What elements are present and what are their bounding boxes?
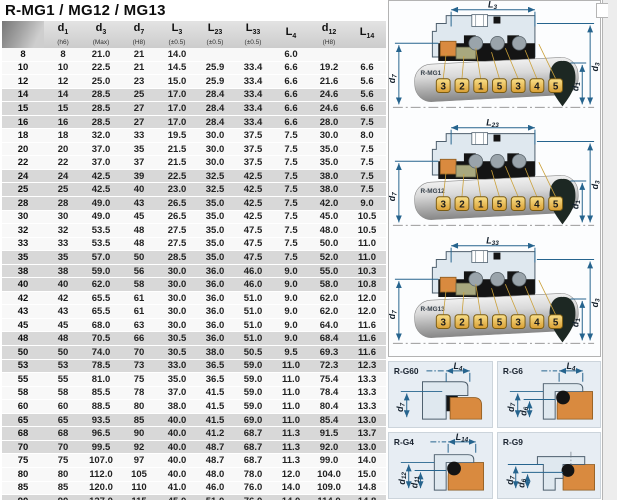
table-row: 8585120.011041.046.076.014.0109.014.8	[2, 481, 386, 495]
cell: 28.4	[196, 102, 234, 116]
cell: 6.6	[272, 61, 310, 75]
cell: 46.0	[234, 278, 272, 292]
cell: 35.0	[310, 156, 348, 170]
cell: 33.4	[234, 61, 272, 75]
cell: 39	[120, 169, 158, 183]
table-row: 535378.57333.036.559.011.072.312.3	[2, 359, 386, 373]
cell: 50.0	[310, 237, 348, 251]
cell: 75	[44, 454, 82, 468]
cell: 8.0	[348, 129, 386, 143]
cell	[310, 48, 348, 61]
table-row: 656593.58540.041.569.011.085.413.0	[2, 413, 386, 427]
cell: 21	[120, 61, 158, 75]
cell: 21.0	[82, 48, 120, 61]
cell: 11.3	[272, 440, 310, 454]
spring-icon	[469, 154, 483, 168]
set-screw-boss	[472, 251, 488, 263]
cell: 32.0	[82, 129, 120, 143]
cell: 68.4	[310, 332, 348, 346]
cell: 45	[120, 210, 158, 224]
cell: 14	[44, 88, 82, 102]
row-size-label: 30	[2, 210, 44, 224]
column-header: L14	[348, 21, 386, 48]
cell: 104.0	[310, 467, 348, 481]
cell: 32.5	[196, 183, 234, 197]
cell: 11.6	[348, 346, 386, 360]
spring-icon	[512, 36, 526, 50]
left-dimension-label: d12	[397, 472, 408, 485]
cell: 21	[120, 48, 158, 61]
cell: 12.0	[348, 291, 386, 305]
row-size-label: 55	[2, 373, 44, 387]
table-row: 333353.54827.535.047.57.550.011.0	[2, 237, 386, 251]
svg-text:1: 1	[478, 318, 484, 329]
cell: 33.4	[234, 102, 272, 116]
svg-text:1: 1	[478, 200, 484, 211]
cell: 30.0	[158, 318, 196, 332]
svg-text:4: 4	[534, 318, 540, 329]
cell: 40.0	[158, 440, 196, 454]
row-size-label: 90	[2, 495, 44, 500]
cell: 99.0	[310, 454, 348, 468]
table-row: 222237.03721.530.037.57.535.07.5	[2, 156, 386, 170]
cell: 69.3	[310, 346, 348, 360]
cell: 41.5	[196, 400, 234, 414]
cell: 6.6	[272, 102, 310, 116]
cell: 11.0	[272, 413, 310, 427]
top-dimension-label: L23	[486, 119, 499, 129]
cell: 9.0	[348, 197, 386, 211]
cell: 45.0	[158, 495, 196, 500]
cell: 17.0	[158, 88, 196, 102]
cell: 6.6	[272, 88, 310, 102]
svg-text:5: 5	[497, 318, 503, 329]
cell: 10.3	[348, 264, 386, 278]
row-size-label: 33	[2, 237, 44, 251]
cell: 7.5	[272, 251, 310, 265]
cell: 7.5	[348, 115, 386, 129]
cell: 7.5	[272, 210, 310, 224]
cell: 6.6	[348, 102, 386, 116]
cell: 36.0	[196, 278, 234, 292]
cell: 66	[120, 332, 158, 346]
cell: 5.6	[348, 88, 386, 102]
cell: 40	[120, 183, 158, 197]
cell: 68.0	[82, 318, 120, 332]
cell: 10.5	[348, 210, 386, 224]
table-row: 151528.52717.028.433.46.624.66.6	[2, 102, 386, 116]
seat-panel-rg4: R-G4 L14 d12 d11	[388, 432, 493, 499]
cell: 48.7	[196, 440, 234, 454]
table-row: 585885.57837.041.559.011.078.413.3	[2, 386, 386, 400]
cell: 33	[120, 129, 158, 143]
cell: 19.2	[310, 61, 348, 75]
cell: 12.0	[272, 467, 310, 481]
cell: 52.0	[310, 251, 348, 265]
cell: 38.0	[158, 400, 196, 414]
o-ring	[556, 391, 570, 405]
cell: 22.5	[158, 169, 196, 183]
cell: 21.5	[158, 142, 196, 156]
left-dimension-label: d7	[395, 402, 406, 411]
cell: 78.5	[82, 359, 120, 373]
row-size-label: 32	[2, 224, 44, 238]
cell: 59.0	[234, 400, 272, 414]
table-row: 161628.52717.028.433.46.628.07.5	[2, 115, 386, 129]
cell: 6.0	[272, 48, 310, 61]
d3-dimension-label: d3	[590, 62, 600, 71]
cell: 35.0	[196, 251, 234, 265]
cell: 85.5	[82, 386, 120, 400]
cell: 127.0	[82, 495, 120, 500]
cell: 7.5	[272, 197, 310, 211]
cell: 7.5	[272, 224, 310, 238]
cell: 35.0	[196, 197, 234, 211]
cell: 51.0	[234, 318, 272, 332]
cell: 23	[120, 75, 158, 89]
cell: 21.5	[158, 156, 196, 170]
cell: 68.7	[234, 440, 272, 454]
row-size-label: 65	[2, 413, 44, 427]
cell: 35	[120, 142, 158, 156]
table-row: 484870.56630.536.051.09.068.411.6	[2, 332, 386, 346]
cell: 20	[44, 142, 82, 156]
cell: 62.0	[310, 291, 348, 305]
cell: 7.5	[272, 129, 310, 143]
cell: 33.4	[234, 75, 272, 89]
cell: 30	[44, 210, 82, 224]
cell: 23.0	[158, 183, 196, 197]
cell: 7.5	[272, 142, 310, 156]
cell: 41.2	[196, 427, 234, 441]
cell: 53.5	[82, 237, 120, 251]
table-row: 686896.59040.041.268.711.391.513.7	[2, 427, 386, 441]
set-screw-boss	[472, 133, 488, 145]
row-size-label: 18	[2, 129, 44, 143]
table-row: 9090127.011545.051.076.014.0114.014.8	[2, 495, 386, 500]
d3-dimension-label: d3	[590, 180, 600, 189]
cell: 40.0	[158, 467, 196, 481]
cell: 50.5	[234, 346, 272, 360]
row-size-label: 35	[2, 251, 44, 265]
cell: 9.0	[272, 264, 310, 278]
cell: 109.0	[310, 481, 348, 495]
row-size-label: 25	[2, 183, 44, 197]
svg-text:4: 4	[534, 82, 540, 93]
cell: 61	[120, 291, 158, 305]
cell: 59.0	[234, 386, 272, 400]
cell: 9.0	[272, 318, 310, 332]
cell: 51.0	[234, 332, 272, 346]
table-row: 434365.56130.036.051.09.062.012.0	[2, 305, 386, 319]
cell: 10.5	[348, 224, 386, 238]
cell: 36.5	[196, 359, 234, 373]
cell: 36.0	[196, 332, 234, 346]
cell: 7.5	[348, 156, 386, 170]
cell: 37.5	[234, 156, 272, 170]
cell: 12	[44, 75, 82, 89]
cell: 48	[120, 237, 158, 251]
cell: 51.0	[234, 305, 272, 319]
cell: 48.0	[196, 467, 234, 481]
cell: 26.5	[158, 197, 196, 211]
cell: 36.0	[196, 291, 234, 305]
cell: 40	[44, 278, 82, 292]
top-dimension-label: L14	[456, 433, 469, 443]
cell: 42.5	[82, 169, 120, 183]
cell: 37.0	[82, 156, 120, 170]
seal-cross-section-diagram: R-MG1 3 2 1 5 3 4 5	[389, 1, 600, 119]
cell: 75.4	[310, 373, 348, 387]
cell: 64.0	[310, 318, 348, 332]
svg-text:3: 3	[515, 200, 521, 211]
table-row: 454568.06330.036.051.09.064.011.6	[2, 318, 386, 332]
cell: 17.0	[158, 102, 196, 116]
row-size-label: 58	[2, 386, 44, 400]
cell: 33.4	[234, 88, 272, 102]
svg-text:2: 2	[459, 200, 465, 211]
cell: 48.7	[196, 454, 234, 468]
cell: 42	[44, 291, 82, 305]
cell: 46.0	[234, 264, 272, 278]
cell: 27	[120, 102, 158, 116]
row-size-label: 28	[2, 197, 44, 211]
seat-diagram-rg9: R-G9 d7 d6	[498, 433, 601, 498]
cell: 85	[44, 481, 82, 495]
cell: 24.6	[310, 88, 348, 102]
cell: 13.3	[348, 386, 386, 400]
cell: 32.5	[196, 169, 234, 183]
seal-face-ring	[440, 41, 456, 56]
cell: 12.3	[348, 359, 386, 373]
o-ring	[561, 464, 574, 477]
cell: 9.0	[272, 332, 310, 346]
cell: 24.6	[310, 102, 348, 116]
cell: 28.5	[82, 115, 120, 129]
cell: 18	[44, 129, 82, 143]
table-row: 121225.02315.025.933.46.621.65.6	[2, 75, 386, 89]
cell: 37.5	[234, 142, 272, 156]
cell: 85.4	[310, 413, 348, 427]
cell	[196, 48, 234, 61]
cell: 13.3	[348, 400, 386, 414]
cell: 99.5	[82, 440, 120, 454]
cell: 11.0	[272, 386, 310, 400]
cell: 30.0	[158, 264, 196, 278]
seal-cross-section-diagram: R-MG13 3 2 1 5 3 4 5	[389, 237, 600, 355]
cell: 11.0	[272, 400, 310, 414]
cell: 10.8	[348, 278, 386, 292]
d3-dimension-label: d3	[590, 298, 600, 307]
cell: 65	[44, 413, 82, 427]
left-dimension-label: d7	[505, 402, 516, 411]
cell: 51.0	[196, 495, 234, 500]
set-screw-icon	[494, 253, 501, 260]
spring-icon	[491, 272, 505, 286]
part-number-tags: 3 2 1 5 3 4 5	[436, 79, 562, 93]
cell: 11.0	[272, 359, 310, 373]
cell: 27.5	[158, 237, 196, 251]
spring-icon	[491, 36, 505, 50]
cell: 6.6	[348, 61, 386, 75]
row-size-label: 45	[2, 318, 44, 332]
cell: 65.5	[82, 305, 120, 319]
column-header: L3(±0.5)	[158, 21, 196, 48]
cell: 30.0	[158, 305, 196, 319]
svg-text:5: 5	[553, 318, 559, 329]
cell: 40.0	[158, 413, 196, 427]
cell: 25.9	[196, 75, 234, 89]
cell: 6.6	[272, 115, 310, 129]
seat-panel-rg9: R-G9 d7 d6	[497, 432, 602, 499]
set-screw-icon	[494, 17, 501, 24]
cell: 30.0	[158, 278, 196, 292]
cell: 90	[120, 427, 158, 441]
cell: 42.5	[234, 169, 272, 183]
cell: 5.6	[348, 75, 386, 89]
cell: 13.7	[348, 427, 386, 441]
cell: 60	[44, 400, 82, 414]
column-header: d12(H8)	[310, 21, 348, 48]
table-row: 353557.05028.535.047.57.552.011.0	[2, 251, 386, 265]
cell: 6.6	[272, 75, 310, 89]
cell: 38.0	[310, 169, 348, 183]
cell: 28.5	[82, 102, 120, 116]
table-row: 606088.58038.041.559.011.080.413.3	[2, 400, 386, 414]
table-row: 404062.05830.036.046.09.058.010.8	[2, 278, 386, 292]
cell: 15.0	[348, 467, 386, 481]
seat-name: R-G9	[502, 437, 522, 447]
cell: 42.5	[234, 183, 272, 197]
cell: 27.5	[158, 224, 196, 238]
cell: 53	[44, 359, 82, 373]
cell: 63	[120, 318, 158, 332]
cell: 14.8	[348, 495, 386, 500]
cell: 51.0	[234, 291, 272, 305]
cell: 59.0	[82, 264, 120, 278]
cell: 42.0	[310, 197, 348, 211]
spring-icon	[469, 272, 483, 286]
set-screw-icon	[494, 135, 501, 142]
table-row: 707099.59240.048.768.711.392.013.0	[2, 440, 386, 454]
part-number-tags: 3 2 1 5 3 4 5	[436, 197, 562, 211]
table-row: 252542.54023.032.542.57.538.07.5	[2, 183, 386, 197]
set-screw-boss	[472, 15, 488, 27]
svg-text:3: 3	[440, 200, 446, 211]
cell: 36.0	[196, 264, 234, 278]
table-row: 101022.52114.525.933.46.619.26.6	[2, 61, 386, 75]
cell: 76.0	[234, 495, 272, 500]
cell: 50	[44, 346, 82, 360]
cell: 61	[120, 305, 158, 319]
cell: 43	[120, 197, 158, 211]
cell: 9.0	[272, 291, 310, 305]
cell: 45	[44, 318, 82, 332]
table-row: 181832.03319.530.037.57.530.08.0	[2, 129, 386, 143]
cell: 47.5	[234, 251, 272, 265]
cell: 62.0	[82, 278, 120, 292]
svg-text:3: 3	[440, 318, 446, 329]
cell: 19.5	[158, 129, 196, 143]
cell: 37.5	[234, 129, 272, 143]
row-size-label: 14	[2, 88, 44, 102]
cell: 10	[44, 61, 82, 75]
seat-ring	[450, 397, 482, 419]
cell: 48	[44, 332, 82, 346]
cell: 97	[120, 454, 158, 468]
cell: 11.0	[272, 373, 310, 387]
cell	[348, 48, 386, 61]
left-dimension-label: d7	[389, 74, 398, 83]
cell: 41.5	[196, 386, 234, 400]
cell: 30.0	[158, 291, 196, 305]
row-size-label: 16	[2, 115, 44, 129]
seat-diagram-rg4: R-G4 L14 d12 d11	[389, 433, 492, 498]
row-size-label: 42	[2, 291, 44, 305]
table-row: 383859.05630.036.046.09.055.010.3	[2, 264, 386, 278]
cell: 58	[120, 278, 158, 292]
column-header: L23(±0.5)	[196, 21, 234, 48]
cell: 91.5	[310, 427, 348, 441]
size-table-body: 8821.02114.06.0101022.52114.525.933.46.6…	[2, 48, 386, 500]
svg-text:1: 1	[478, 82, 484, 93]
cell: 36.0	[196, 305, 234, 319]
cell: 65.5	[82, 291, 120, 305]
seal-cross-section-diagram: R-MG12 3 2 1 5 3 4 5	[389, 119, 600, 237]
column-header: d7(H8)	[120, 21, 158, 48]
table-row: 202037.03521.530.037.57.535.07.5	[2, 142, 386, 156]
row-size-label: 70	[2, 440, 44, 454]
cell: 37	[120, 156, 158, 170]
cell: 80.4	[310, 400, 348, 414]
cell: 7.5	[348, 183, 386, 197]
cell: 35.0	[158, 373, 196, 387]
cell: 58	[44, 386, 82, 400]
cell: 105	[120, 467, 158, 481]
cell: 92	[120, 440, 158, 454]
svg-text:3: 3	[440, 82, 446, 93]
cell: 59.0	[234, 373, 272, 387]
seal-diagrams-panel: R-MG1 3 2 1 5 3 4 5	[388, 0, 601, 357]
cell: 7.5	[272, 156, 310, 170]
seat-panel-rg60: R-G60 L4 d7	[388, 361, 493, 428]
cell: 11.6	[348, 318, 386, 332]
table-row: 555581.07535.036.559.011.075.413.3	[2, 373, 386, 387]
row-size-label: 85	[2, 481, 44, 495]
cell: 50	[120, 251, 158, 265]
row-size-label: 20	[2, 142, 44, 156]
cell: 55	[44, 373, 82, 387]
row-size-label: 38	[2, 264, 44, 278]
page-edge-tab	[596, 3, 608, 18]
cell: 37.0	[158, 386, 196, 400]
dimensions-table: d1(h6)d3(Max)d7(H8)L3(±0.5)L23(±0.5)L33(…	[2, 21, 386, 500]
cell: 38.0	[196, 346, 234, 360]
cell: 90	[44, 495, 82, 500]
row-size-label: 15	[2, 102, 44, 116]
cell: 17.0	[158, 115, 196, 129]
svg-text:5: 5	[553, 82, 559, 93]
table-row: 424265.56130.036.051.09.062.012.0	[2, 291, 386, 305]
cell: 78.0	[234, 467, 272, 481]
cell: 36.0	[196, 318, 234, 332]
page-title: R-MG1 / MG12 / MG13	[5, 2, 166, 19]
cell: 41.0	[158, 481, 196, 495]
cell: 7.5	[272, 183, 310, 197]
cell: 28.5	[158, 251, 196, 265]
row-size-label: 40	[2, 278, 44, 292]
cell: 59.0	[234, 359, 272, 373]
